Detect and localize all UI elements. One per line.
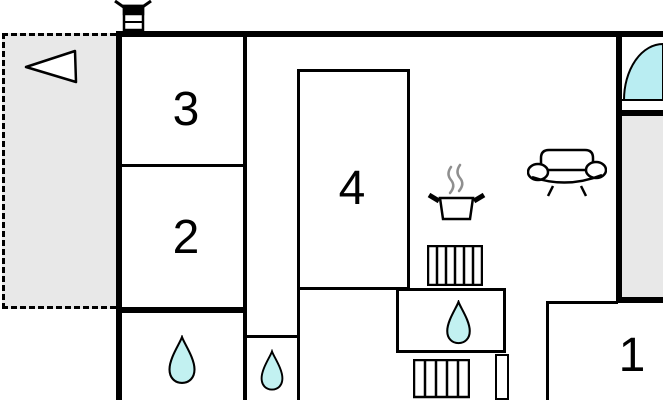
room-4-label: 4 [339, 165, 366, 213]
wall-below-room2 [116, 307, 247, 313]
wall-terrace-right-bottom [616, 297, 663, 303]
wall-top [116, 31, 663, 37]
wall-wc-top [245, 335, 300, 338]
wall-under-window [616, 110, 663, 116]
door-leaf [495, 354, 509, 400]
floor-plan: 3 2 4 1 [0, 0, 663, 400]
cooking-pot-icon [426, 161, 486, 221]
sofa-icon [527, 146, 607, 198]
window-arc-icon [622, 40, 663, 103]
wall-room1-top [546, 301, 618, 304]
direction-triangle-icon [24, 49, 78, 85]
water-drop-icon [166, 335, 198, 385]
wall-room3-room2-divider [122, 164, 243, 167]
wall-corridor-vertical [243, 31, 247, 400]
radiator-icon [427, 245, 483, 286]
wall-below-room4 [297, 287, 300, 400]
terrace-right [622, 116, 663, 297]
room-3-label: 3 [173, 86, 200, 134]
radiator-icon [413, 359, 470, 400]
water-drop-icon [259, 349, 285, 392]
chimney-icon [113, 0, 153, 31]
room-1-label: 1 [619, 332, 646, 380]
water-drop-icon [444, 300, 473, 345]
wall-left [116, 31, 122, 400]
room-2-label: 2 [173, 214, 200, 262]
wall-room1-left [546, 301, 549, 400]
